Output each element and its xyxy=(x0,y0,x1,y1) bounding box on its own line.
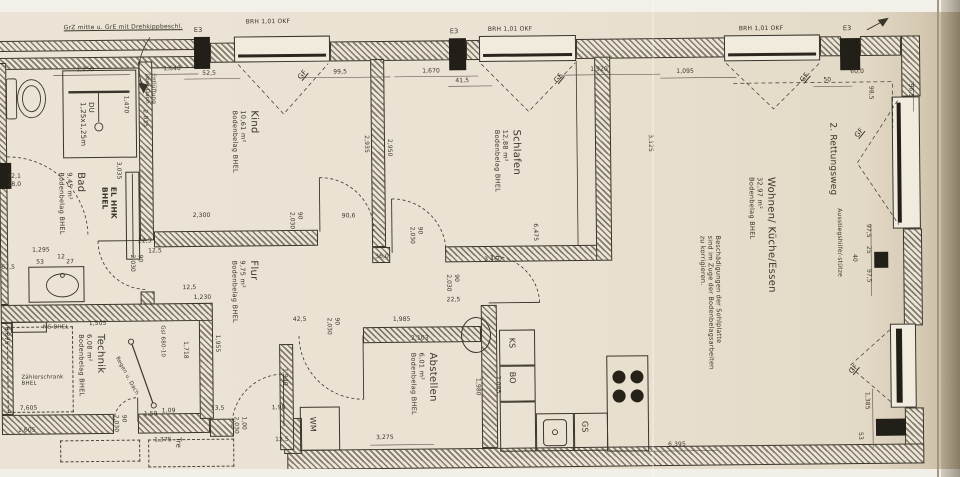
wohnen-note-line: sind im Zuge der Bodenbelagsarbeiten xyxy=(706,236,715,370)
plan-note: GrZ mitte u. GrE mit Drehkippbeschl. xyxy=(64,23,183,31)
dim-label: 2,085 xyxy=(494,376,501,394)
room-label-bad: Bad9,45 m²Bodenbelag BHEL xyxy=(57,172,86,235)
paper-edge-top xyxy=(0,0,960,12)
dim-label: 6,395 xyxy=(668,441,686,448)
dim-label: 98,5 xyxy=(867,86,874,100)
gsl-label-text: Gsl 680-10 xyxy=(159,325,166,357)
dim-label: 1,375 xyxy=(154,436,172,443)
dim-label: 1,385 xyxy=(864,392,871,410)
paper-fold-line xyxy=(652,0,654,477)
room-area: 10,61 m² xyxy=(239,110,248,172)
dim-label: 1,230 xyxy=(194,294,212,301)
dim-label: 36,0 xyxy=(375,253,389,260)
window-sill-label-text: BRH 1,01 OKF xyxy=(488,25,533,33)
dim-label: 53 xyxy=(36,259,44,266)
dim-label: 1,920 xyxy=(590,66,608,73)
rescue-route-label-text: 2. Rettungsweg xyxy=(827,122,838,195)
e3-marker: E3 xyxy=(450,28,459,36)
room-name: Bad xyxy=(74,172,87,235)
window-sill-label: BRH 1,01 OKF xyxy=(246,18,291,26)
door-width: 90 xyxy=(136,255,144,272)
room-area: 9,45 m² xyxy=(65,172,74,234)
dim-label: 22,5 xyxy=(447,296,461,303)
room-label-schlafen: Schlafen12,88 m²Bodenbelag BHEL xyxy=(493,130,522,193)
stairs-label-text: Tre xyxy=(174,437,182,448)
radiator-label: EL HHKBHEL xyxy=(99,187,117,219)
bo-label-text: BO xyxy=(507,372,517,384)
door-height: 2,030 xyxy=(325,318,333,335)
shower-label-line: DU xyxy=(87,102,96,146)
e3-marker: E3 xyxy=(194,27,203,35)
dim-label: 99,5 xyxy=(333,68,347,75)
dim-label: 6,475 xyxy=(532,223,539,241)
dim-label: 1,605 xyxy=(18,427,36,434)
door-width: 90 xyxy=(416,227,424,244)
dim-label: 42,5 xyxy=(293,316,307,323)
paper-edge-line xyxy=(937,0,939,477)
dim-label: 2,103 xyxy=(411,335,429,342)
shower-label-line: 1,25x1,25m xyxy=(79,102,88,146)
door-size-label: 902,030 xyxy=(128,255,144,272)
dim-label: 8,075 xyxy=(3,327,10,345)
dim-label: 28,0 xyxy=(7,181,21,188)
dim-label: 90,6 xyxy=(342,212,356,219)
dim-label: 97,5 xyxy=(865,269,872,283)
door-width: 1,00 xyxy=(240,416,248,433)
door-height: 2,030 xyxy=(444,274,452,291)
door-size-label: 902,030 xyxy=(325,317,341,334)
dim-label: 1,09 xyxy=(162,407,176,414)
dim-label: 96,5 xyxy=(907,83,914,97)
room-name: Abstellen xyxy=(425,352,438,415)
photo-shadow-right xyxy=(941,0,960,477)
dim-label: 1,640 xyxy=(163,65,181,72)
dim-label: 52,5 xyxy=(202,70,216,77)
door-width: 90 xyxy=(120,415,128,432)
floor-plan: Kind10,61 m²Bodenbelag BHELSchlafen12,88… xyxy=(0,0,960,477)
dim-label: 1,095 xyxy=(676,68,694,75)
door-size-label: 902,030 xyxy=(408,227,424,244)
e3-marker-text: E3 xyxy=(843,25,852,33)
door-width: 90 xyxy=(333,317,341,334)
dim-label: 12,5 xyxy=(148,247,162,254)
room-area: 9,75 m² xyxy=(238,260,247,322)
dim-label: 97,5 xyxy=(865,224,872,238)
radiator-label-line: EL HHK xyxy=(108,187,117,219)
dim-label: 2,835 xyxy=(142,109,149,127)
floorplan-photo: Kind10,61 m²Bodenbelag BHELSchlafen12,88… xyxy=(0,0,960,477)
dim-label: 1,505 xyxy=(89,320,107,327)
dim-label: 67,5 xyxy=(1,264,15,271)
dim-label: 22,5 xyxy=(138,237,152,244)
dim-label: 53 xyxy=(857,432,864,440)
dim-label: 3,460 xyxy=(484,256,502,263)
room-flooring: Bodenbelag BHEL xyxy=(57,172,66,234)
door-height: 2,030 xyxy=(128,255,136,272)
room-flooring: Bodenbelag BHEL xyxy=(493,130,502,192)
dim-label: 32,1 xyxy=(7,173,21,180)
dim-label: 1,718 xyxy=(182,341,189,359)
room-label-flur: Flur9,75 m²Bodenbelag BHEL xyxy=(230,260,259,323)
room-name: Kind xyxy=(247,110,260,173)
ms-label-text: MS BHEL xyxy=(43,324,69,331)
room-label-wohnen-k-che-essen: Wohnen/ Küche/Essen32,97 m²Bodenbelag BH… xyxy=(747,177,777,293)
gs-label: GS xyxy=(580,421,590,433)
room-label-abstellen: Abstellen6,01 m²Bodenbelag BHEL xyxy=(409,352,438,415)
room-flooring: Bodenbelag BHEL xyxy=(230,261,239,323)
door-size-label: 1,002,030 xyxy=(232,416,248,433)
vent-label-line: Entlüftung xyxy=(150,73,157,104)
dim-label: 1,980 xyxy=(474,378,481,396)
door-size-label: 902,030 xyxy=(112,415,128,432)
dim-label: 1,59 xyxy=(144,410,158,417)
dim-label: 13,5 xyxy=(211,405,225,412)
dim-label: 12,5 xyxy=(275,436,289,443)
door-size-label: 902,030 xyxy=(288,212,304,229)
room-label-kind: Kind10,61 m²Bodenbelag BHEL xyxy=(231,110,260,173)
dim-label: 3,035 xyxy=(115,162,122,180)
door-width: 90 xyxy=(296,212,304,229)
door-height: 2,030 xyxy=(288,212,296,229)
paper-edge-bottom xyxy=(0,469,960,477)
dim-label: 41,5 xyxy=(455,77,469,84)
window-sill-label-text: BRH 1,01 OKF xyxy=(246,18,291,26)
room-label-technik: Technik6,08 m²Bodenbelag BHEL xyxy=(77,334,106,397)
exit-aid-label-text: Ausstiegshilfe/-stütze xyxy=(836,208,844,277)
dim-label: 1,985 xyxy=(393,316,411,323)
window-sill-label-text: BRH 1,01 OKF xyxy=(739,25,784,33)
dim-label: 1,90 xyxy=(272,404,286,411)
room-name: Technik xyxy=(93,334,106,397)
dim-label: 1,295 xyxy=(32,247,50,254)
room-name: Schlafen xyxy=(509,130,522,193)
gsl-label: Gsl 680-10 xyxy=(159,325,166,357)
window-sill-label: BRH 1,01 OKF xyxy=(488,25,533,33)
exit-aid-label: Ausstiegshilfe/-stütze xyxy=(836,208,844,277)
dim-label: 12,5 xyxy=(182,284,196,291)
dim-label: 2,935 xyxy=(363,135,370,153)
door-size-label: 902,030 xyxy=(444,274,460,291)
ks-label: KS xyxy=(507,338,517,349)
dim-label: 1,940 xyxy=(281,368,288,386)
e3-marker: E3 xyxy=(843,25,852,33)
meter-cabinet-label-line: BHEL xyxy=(21,381,63,388)
dim-label: 60,0 xyxy=(850,68,864,75)
dim-label: 50 xyxy=(823,76,831,83)
door-height: 2,030 xyxy=(408,227,416,244)
vent-label-line: über Dach xyxy=(143,73,150,104)
wm-label-text: WM xyxy=(308,417,318,432)
dim-label: 1,955 xyxy=(214,335,221,353)
vent-label: Entlüftungüber Dach xyxy=(143,73,156,104)
bo-label: BO xyxy=(507,372,517,384)
dim-label: 2,950 xyxy=(386,139,393,157)
plan-note-text: GrZ mitte u. GrE mit Drehkippbeschl. xyxy=(64,23,183,31)
dim-label: 1,250 xyxy=(76,66,94,73)
dim-label: 25 xyxy=(865,246,872,254)
dim-label: 7,605 xyxy=(20,405,38,412)
room-flooring: Bodenbelag BHEL xyxy=(77,334,86,396)
room-flooring: Bodenbelag BHEL xyxy=(747,177,756,293)
dim-label: 1,670 xyxy=(422,67,440,74)
room-name: Wohnen/ Küche/Essen xyxy=(764,177,778,293)
room-name: Flur xyxy=(246,260,259,323)
room-area: 6,01 m² xyxy=(417,353,426,415)
dim-label: 3,275 xyxy=(376,434,394,441)
gs-label-text: GS xyxy=(580,421,590,433)
ms-label: MS BHEL xyxy=(43,324,69,331)
dim-label: 12 xyxy=(57,253,65,260)
door-height: 2,030 xyxy=(232,417,240,434)
e3-marker-text: E3 xyxy=(194,27,203,35)
ks-label-text: KS xyxy=(507,338,517,349)
stairs-label: Tre xyxy=(174,437,182,448)
wm-label: WM xyxy=(308,417,318,432)
dim-label: 2,300 xyxy=(193,212,211,219)
rescue-route-label: 2. Rettungsweg xyxy=(827,122,838,195)
dim-label: 1,470 xyxy=(122,96,129,114)
room-flooring: Bodenbelag BHEL xyxy=(409,353,418,415)
e3-marker-text: E3 xyxy=(450,28,459,36)
room-area: 12,88 m² xyxy=(501,130,510,192)
door-width: 90 xyxy=(452,274,460,291)
meter-cabinet-label: ZählerschrankBHEL xyxy=(21,374,63,387)
wohnen-note: Beschädigungen der Sohlplattesind im Zug… xyxy=(698,235,722,369)
room-flooring: Bodenbelag BHEL xyxy=(231,111,240,173)
shower-label: DU1,25x1,25m xyxy=(79,102,96,146)
dim-label: 40 xyxy=(851,254,858,262)
radiator-label-line: BHEL xyxy=(99,187,108,219)
door-height: 2,030 xyxy=(112,415,120,432)
dim-label: 27 xyxy=(66,258,74,265)
window-sill-label: BRH 1,01 OKF xyxy=(739,25,784,33)
